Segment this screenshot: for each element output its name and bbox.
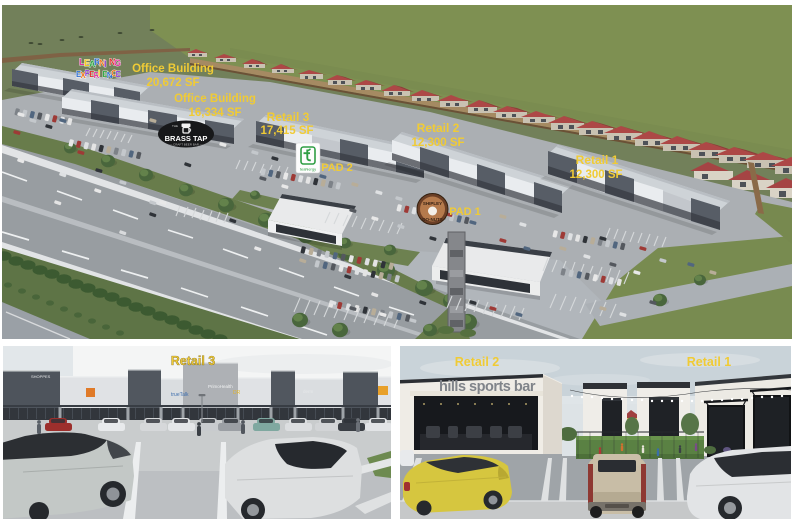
svg-text:Retail 1: Retail 1 [576, 153, 619, 167]
svg-text:— CRAFT BEER BAR —: — CRAFT BEER BAR — [169, 143, 203, 147]
svg-text:G: G [114, 58, 121, 68]
svg-text:Office Building: Office Building [174, 93, 256, 105]
svg-text:PrimoHealth: PrimoHealth [208, 384, 233, 389]
svg-text:12,300 SF: 12,300 SF [569, 169, 622, 181]
svg-text:Retail 2: Retail 2 [455, 355, 500, 369]
svg-text:20,672 SF: 20,672 SF [146, 77, 199, 89]
svg-text:E: E [116, 70, 122, 79]
svg-text:DR: DR [233, 390, 241, 396]
svg-text:Retail 2: Retail 2 [417, 121, 460, 135]
svg-text:PAD 1: PAD 1 [449, 206, 481, 218]
svg-text:PAD 2: PAD 2 [321, 162, 353, 174]
svg-text:hills sports bar: hills sports bar [439, 379, 536, 395]
svg-text:THE: THE [172, 124, 178, 128]
svg-text:Retail 3: Retail 3 [267, 110, 310, 124]
svg-text:Retail 1: Retail 1 [687, 355, 732, 369]
svg-text:16,334 SF: 16,334 SF [188, 107, 241, 119]
svg-text:17,415 SF: 17,415 SF [260, 125, 313, 137]
svg-text:DO-NUTS: DO-NUTS [422, 217, 443, 222]
svg-text:teaNergy: teaNergy [300, 167, 316, 172]
svg-text:I: I [98, 69, 100, 78]
svg-text:SHIPLEY: SHIPLEY [423, 201, 442, 206]
svg-text:SHOPPES: SHOPPES [31, 374, 51, 379]
svg-text:12,300 SF: 12,300 SF [411, 137, 464, 149]
svg-text:trueTalk: trueTalk [171, 392, 189, 398]
svg-text:Office Building: Office Building [132, 63, 214, 75]
svg-text:I: I [104, 59, 107, 69]
svg-text:derm: derm [303, 389, 314, 394]
svg-text:Retail 3: Retail 3 [171, 354, 216, 368]
